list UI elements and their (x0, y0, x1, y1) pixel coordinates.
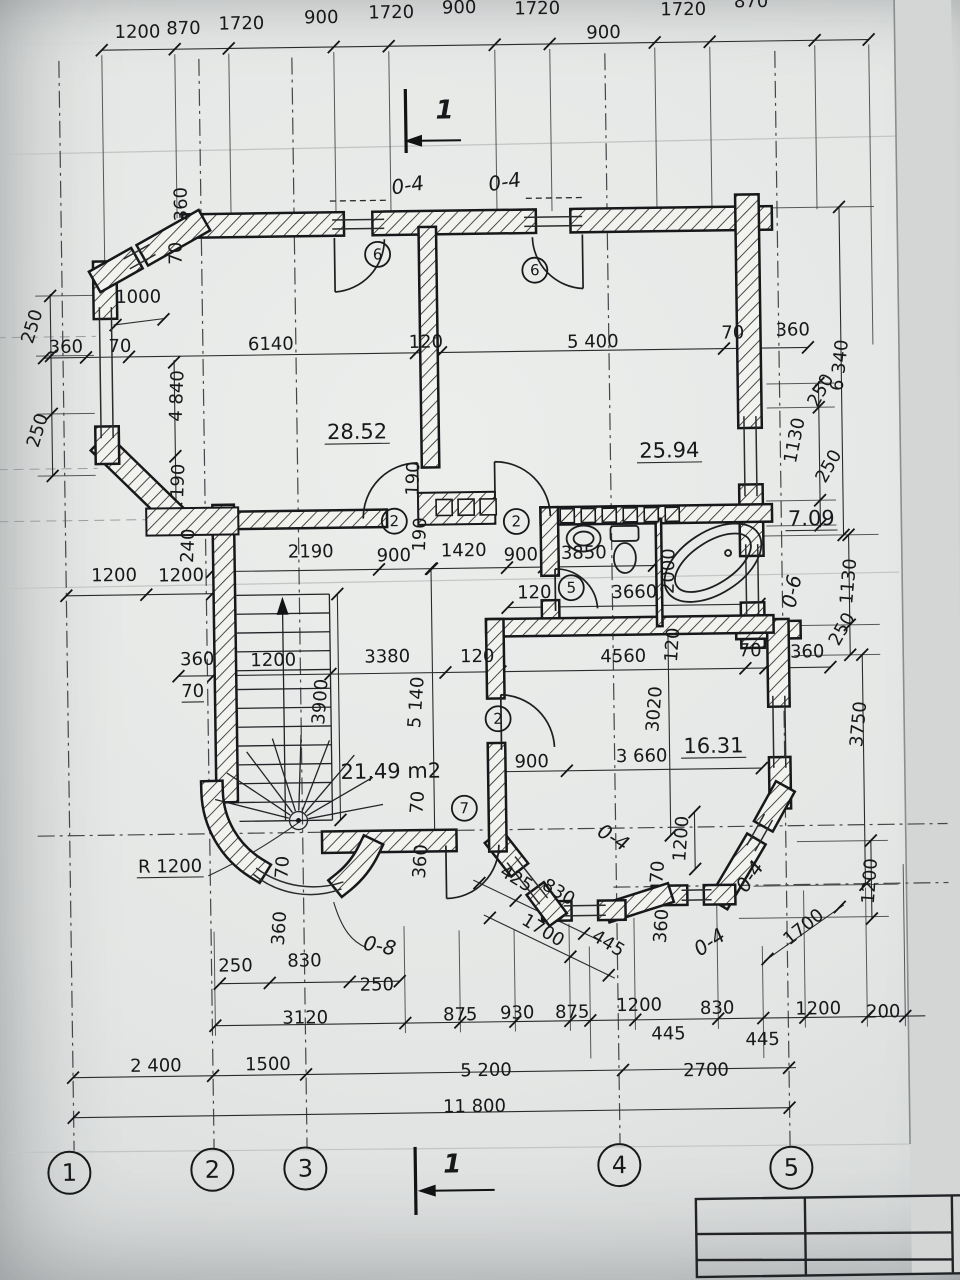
dimension-label: 1200 (250, 650, 296, 672)
dimension-label: 445 (651, 1023, 686, 1044)
wall-hatch (747, 206, 750, 416)
window-type-label: 0-4 (593, 818, 633, 855)
room-area-label: 28.52 (327, 419, 387, 444)
dimension-label: 70 (108, 336, 131, 357)
dimension-label: 900 (503, 544, 538, 565)
dimension-label: 5 140 (404, 676, 429, 729)
dimension-label: 1200 (91, 565, 137, 587)
dimension-label: 3660 (611, 582, 657, 604)
wall-hatch (333, 840, 446, 842)
section-label: 1 (443, 1149, 462, 1179)
wall-hatch (768, 796, 780, 817)
dimension-label: 445 (745, 1029, 780, 1050)
dimension-label: 360 (775, 319, 810, 340)
dimension-label: 120 (409, 331, 444, 352)
floor-plan-drawing: 1200870172090017209001720900172087036070… (0, 0, 960, 1280)
room-area-labels: 28.5225.947.0916.3121,49 m2 (324, 413, 841, 784)
wall-hatch (582, 218, 760, 220)
dimension-label: 900 (442, 0, 477, 18)
dimension-label: 1200 (616, 994, 662, 1016)
dimension-label: 190 (402, 461, 424, 496)
dimension-label: 11 800 (443, 1096, 506, 1118)
dimension-label: 930 (500, 1002, 535, 1023)
room-area-label: 7.09 (788, 506, 835, 531)
dimension-label: 1720 (218, 13, 264, 35)
section-mark-bottom: 1 (415, 1146, 495, 1215)
dim-tick (578, 927, 590, 939)
stair-direction-line (282, 605, 285, 821)
dimension-label: 70 (271, 855, 294, 879)
dimension-label: 1200 (114, 21, 160, 43)
dimension-label: 3 660 (616, 745, 668, 767)
walls (104, 206, 796, 917)
dimension-label: 360 (180, 649, 215, 670)
toilet-bowl (614, 543, 636, 573)
dimension-label: 70 (739, 640, 762, 661)
dimension-label: 6140 (248, 334, 294, 356)
dimension-label: 4560 (600, 646, 646, 668)
leader-0-8 (334, 902, 367, 948)
dimension-label: 360 (171, 187, 192, 222)
dimension-label: 250 (17, 307, 47, 346)
dimension-label: 3900 (308, 678, 332, 725)
dimension-label: 1420 (441, 540, 487, 562)
dim-tick (603, 969, 615, 981)
toilet-tank (610, 526, 638, 541)
dimension-label: 1720 (514, 0, 560, 19)
axis-bubble-number: 2 (205, 1156, 221, 1184)
dimension-label: 70 (181, 681, 204, 702)
dimension-label: 3380 (364, 646, 410, 668)
dimension-label: 70 (646, 860, 669, 884)
winder-tread (308, 804, 383, 818)
room-area-label: 21,49 m2 (340, 759, 441, 784)
wall-hatch (105, 264, 127, 276)
dimension-label: 3850 (561, 542, 607, 564)
door-mark-number: 2 (511, 512, 521, 530)
dimension-label: 900 (376, 545, 411, 566)
sheet-edge-strip (894, 0, 960, 1274)
blueprint-sheet: 1200870172090017209001720900172087036070… (0, 0, 960, 1280)
scan-artifacts (0, 0, 960, 1280)
dim-tick (564, 951, 576, 963)
axis-bubble-number: 3 (298, 1154, 314, 1182)
dimension-label: 250 (23, 411, 53, 450)
axis-bubble-number: 5 (784, 1154, 800, 1182)
section-mark-top: 1 (403, 88, 461, 153)
section-label: 1 (435, 95, 454, 125)
wall-hatch (495, 624, 765, 628)
dimension-label: 250 (359, 974, 394, 995)
dimension-label: 120 (661, 627, 684, 663)
dimension-label: 1200 (858, 857, 882, 904)
dimension-label: 900 (514, 751, 549, 772)
dimension-label: 2700 (683, 1060, 729, 1082)
spiral-stair-post (296, 818, 301, 823)
dimension-label: 360 (49, 337, 84, 358)
dimension-label: 4 840 (166, 370, 189, 422)
dimension-label: 120 (517, 582, 552, 603)
window-type-label: 0-4 (689, 923, 730, 961)
dimension-label: 875 (555, 1002, 590, 1023)
dimension-label: 360 (409, 843, 432, 879)
dimension-label: 870 (166, 18, 201, 39)
dimension-label: 120 (460, 646, 495, 667)
window-type-label: 0-6 (777, 573, 807, 610)
dimension-label: 900 (304, 7, 339, 28)
dimension-label: 5 400 (567, 331, 619, 353)
axis-bubble-number: 4 (612, 1151, 628, 1179)
door-mark-number: 5 (566, 579, 576, 597)
dimension-label: 445 (588, 926, 628, 962)
dimension-label: R 1200 (138, 856, 202, 878)
room-area-label-underline (785, 530, 837, 531)
dimension-label: 1130 (836, 558, 861, 606)
dimension-label: 250 (218, 955, 253, 976)
dimension-label: 1200 (795, 998, 841, 1020)
room-area-label: 16.31 (683, 733, 743, 758)
dimension-label: 360 (790, 641, 825, 662)
stair-tread (236, 594, 329, 595)
dimension-label: 2000 (658, 548, 680, 594)
dimension-label: 190 (167, 463, 189, 498)
dimension-label: 3020 (642, 685, 666, 732)
stair-arrow (276, 597, 288, 615)
dimension-label: 70 (721, 322, 744, 343)
dimension-label: 900 (586, 22, 621, 43)
dimension-label: 1720 (660, 0, 706, 20)
axis-bubble-number: 1 (62, 1159, 78, 1187)
wall-hatch (778, 630, 779, 696)
dimension-label: 70 (165, 242, 186, 265)
dimension-label: 190 (409, 517, 431, 552)
dimension-label: 2190 (288, 541, 334, 563)
dimension-labels: 1200870172090017209001720900172087036070… (13, 0, 902, 1123)
window-type-label: 0-4 (390, 171, 426, 200)
dim-tick (510, 894, 522, 906)
dimension-label: 360 (650, 908, 673, 944)
dimension-label: 2 400 (130, 1055, 182, 1077)
dimension-label: 1200 (669, 815, 693, 862)
wall-hatch (384, 221, 524, 223)
dim-tick (484, 912, 496, 924)
door-mark-number: 7 (459, 799, 469, 817)
wall-hatch (223, 516, 227, 792)
dim-tick (834, 901, 846, 913)
dimension-label: 3120 (282, 1007, 328, 1029)
dimension-label: 830 (287, 950, 322, 971)
winder-tread (298, 735, 302, 811)
dimension-label: 1000 (115, 286, 161, 308)
dimension-label: 250 (811, 446, 846, 486)
wall-hatch (235, 518, 378, 520)
window-type-label: 0-4 (487, 167, 523, 196)
wall-hatch (495, 628, 496, 690)
dimension-label: 5 200 (460, 1060, 512, 1082)
wall-hatch (549, 516, 550, 567)
door-mark-number: 2 (389, 512, 399, 530)
dimension-label: 1500 (245, 1054, 291, 1076)
dimension-label: 240 (177, 528, 199, 563)
dim-tick (761, 953, 773, 965)
wall-hatch (497, 752, 498, 843)
dimension-label: 1130 (780, 416, 809, 465)
dimension-label: 3750 (846, 700, 871, 748)
door-mark-number: 6 (373, 245, 383, 263)
dimension-label: 1720 (368, 2, 414, 24)
door-mark-number: 6 (530, 261, 540, 279)
dimension-label: 250 (825, 609, 860, 649)
dimension-label: 1200 (158, 565, 204, 587)
dimension-label: 360 (268, 910, 291, 946)
dimension-label: 830 (700, 997, 735, 1018)
wall-hatch (194, 224, 332, 226)
dimension-label: 200 (866, 1001, 901, 1022)
dimension-label: 870 (734, 0, 769, 12)
dimension-label: 875 (443, 1004, 478, 1025)
door-mark-number: 2 (493, 710, 503, 728)
window-type-label: 0-8 (361, 931, 398, 961)
room-area-label: 25.94 (639, 438, 699, 463)
dimension-label: 70 (406, 790, 429, 814)
